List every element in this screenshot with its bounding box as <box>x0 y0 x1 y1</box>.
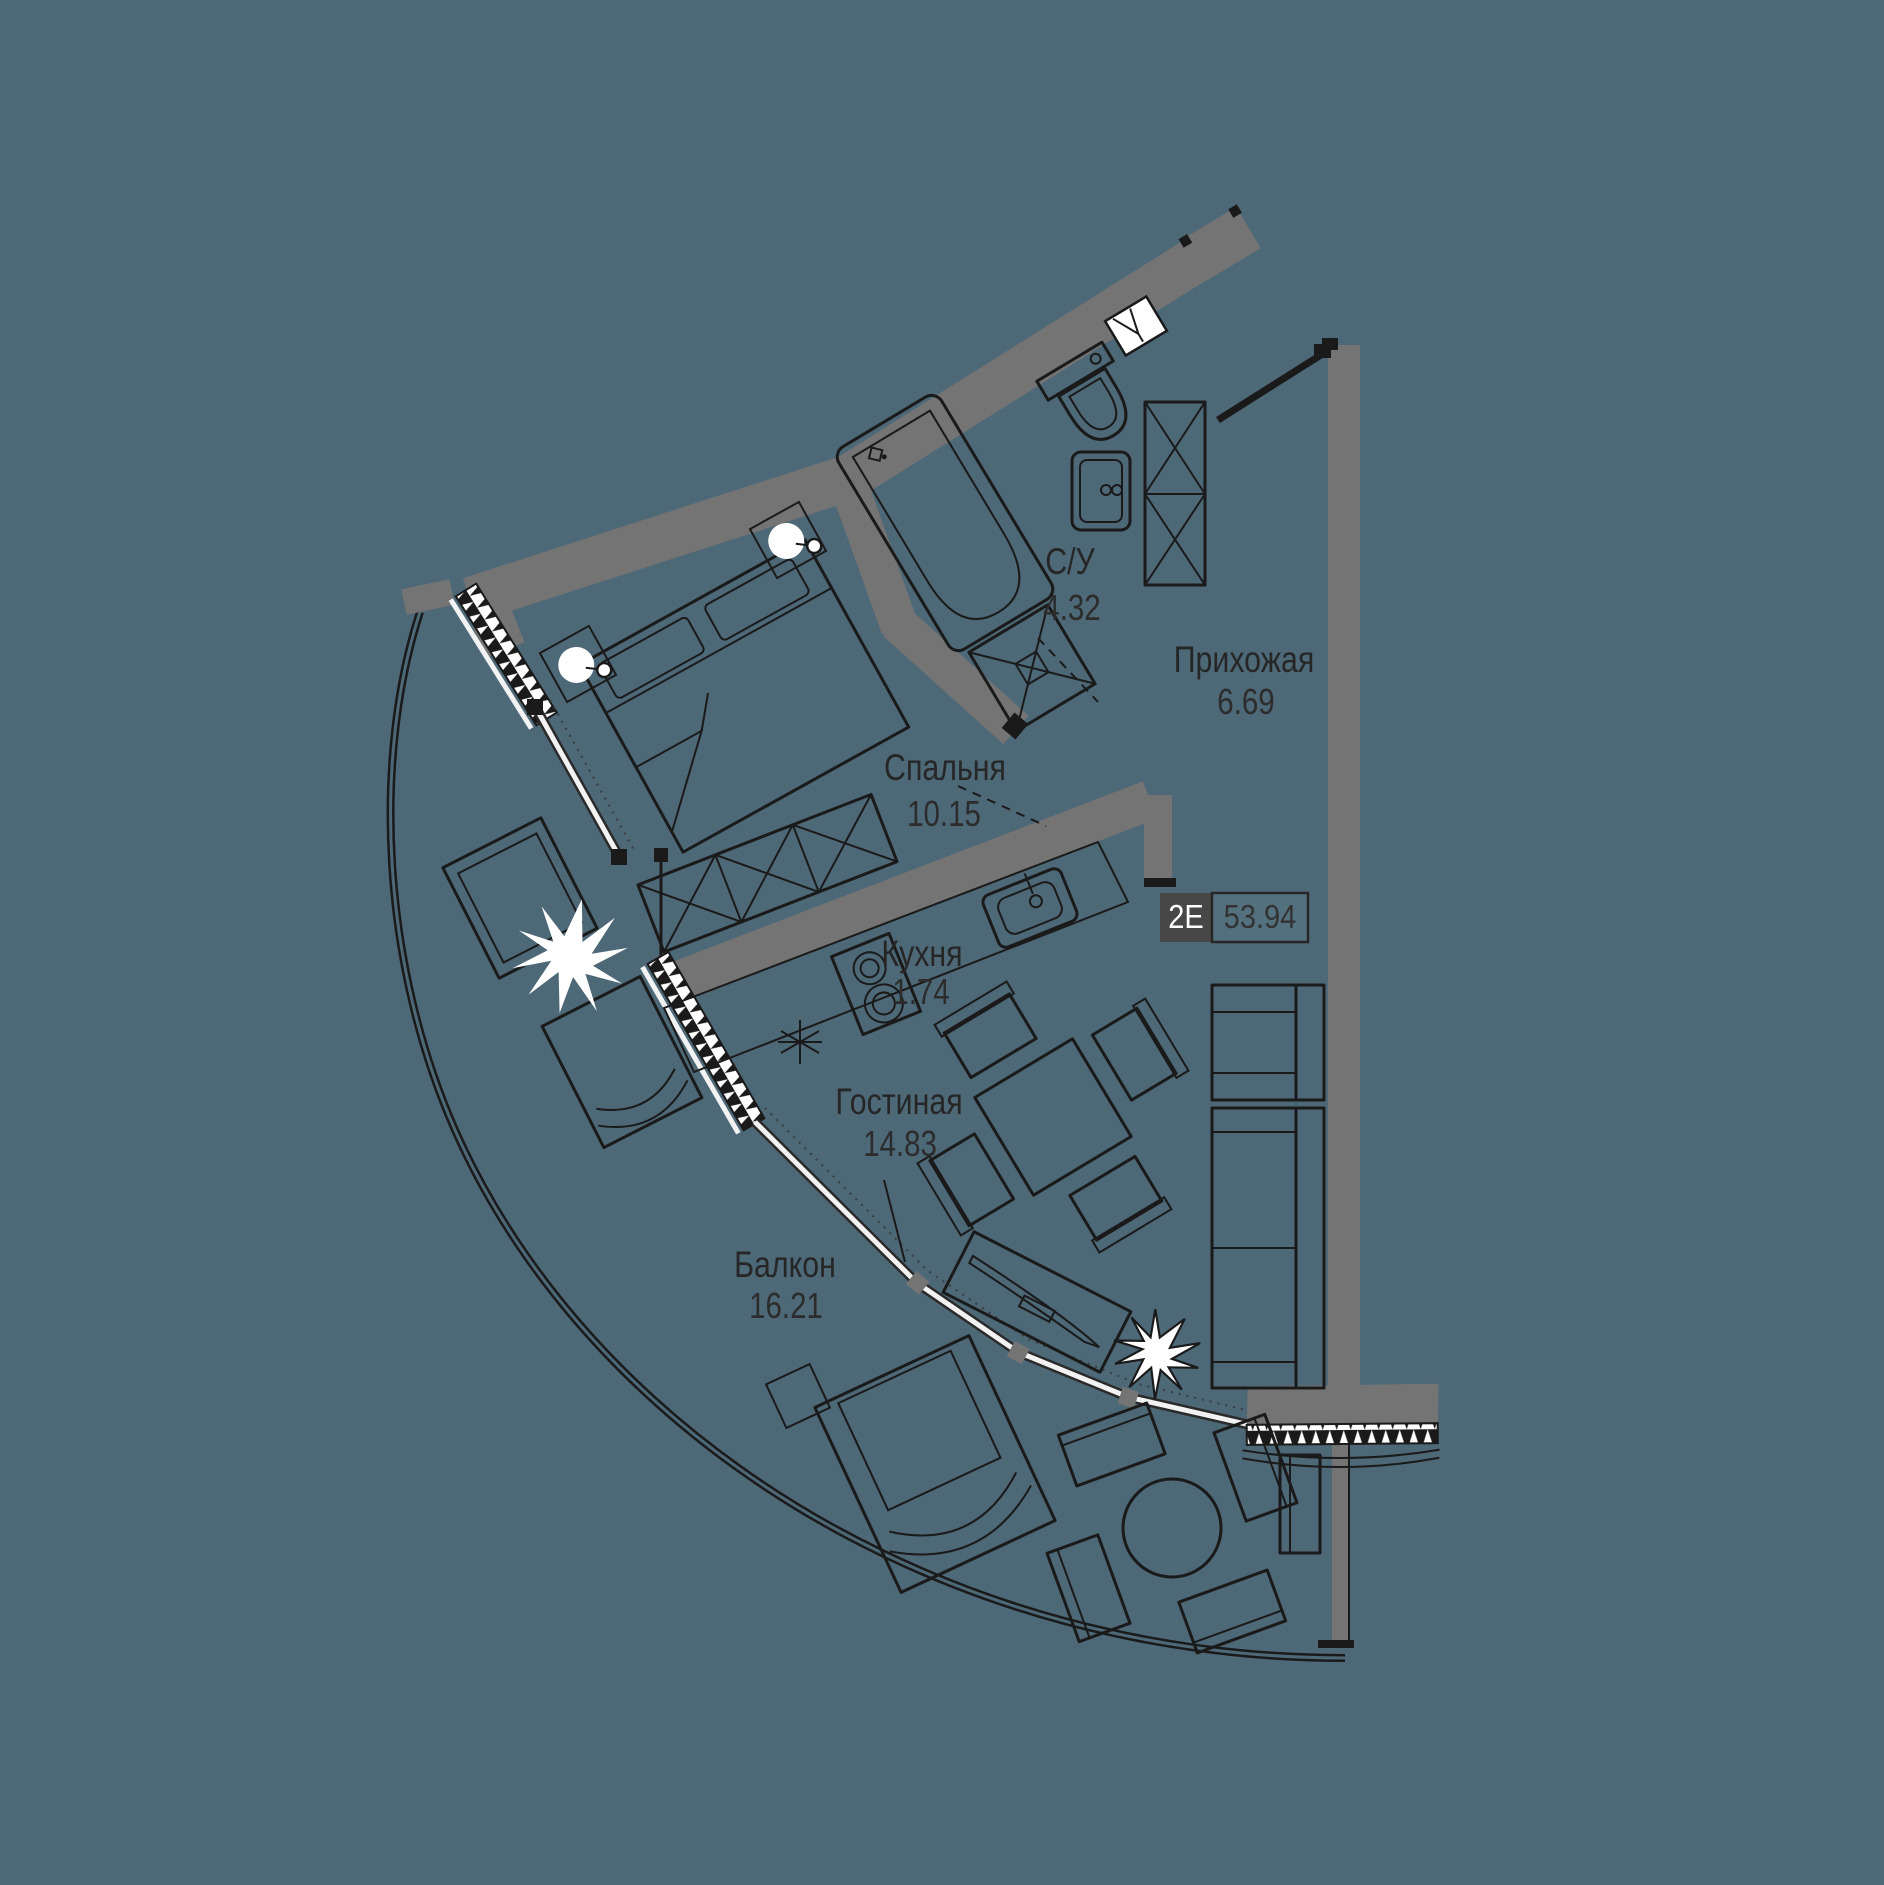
room-label-balcony: Балкон <box>734 1244 836 1286</box>
room-label-bedroom: Спальня <box>884 747 1006 789</box>
badge-total-area: 53.94 <box>1224 898 1297 935</box>
room-label-living: Гостиная <box>835 1081 962 1123</box>
floor-plan-drawing: С/У 4.32 Прихожая 6.69 Спальня 10.15 Кух… <box>0 0 1884 1885</box>
room-area-kitchen: 1.74 <box>892 971 949 1011</box>
room-area-hallway: 6.69 <box>1217 681 1274 721</box>
badge-type-label: 2Е <box>1168 898 1204 935</box>
room-label-bathroom: С/У <box>1045 541 1095 583</box>
floor-plan-canvas: С/У 4.32 Прихожая 6.69 Спальня 10.15 Кух… <box>0 0 1884 1885</box>
room-area-bedroom: 10.15 <box>907 793 981 833</box>
room-area-balcony: 16.21 <box>749 1285 823 1325</box>
wall-right-outer <box>1328 345 1360 1388</box>
room-label-hallway: Прихожая <box>1174 639 1315 681</box>
room-area-living: 14.83 <box>863 1123 937 1163</box>
wall-hall-end <box>1144 795 1172 887</box>
apartment-badge: 2Е 53.94 <box>1160 893 1308 942</box>
room-label-kitchen: Кухня <box>881 933 962 975</box>
room-area-bathroom: 4.32 <box>1043 587 1100 627</box>
wall-left-tip <box>404 592 452 602</box>
wall-right-lower <box>1332 1442 1348 1642</box>
